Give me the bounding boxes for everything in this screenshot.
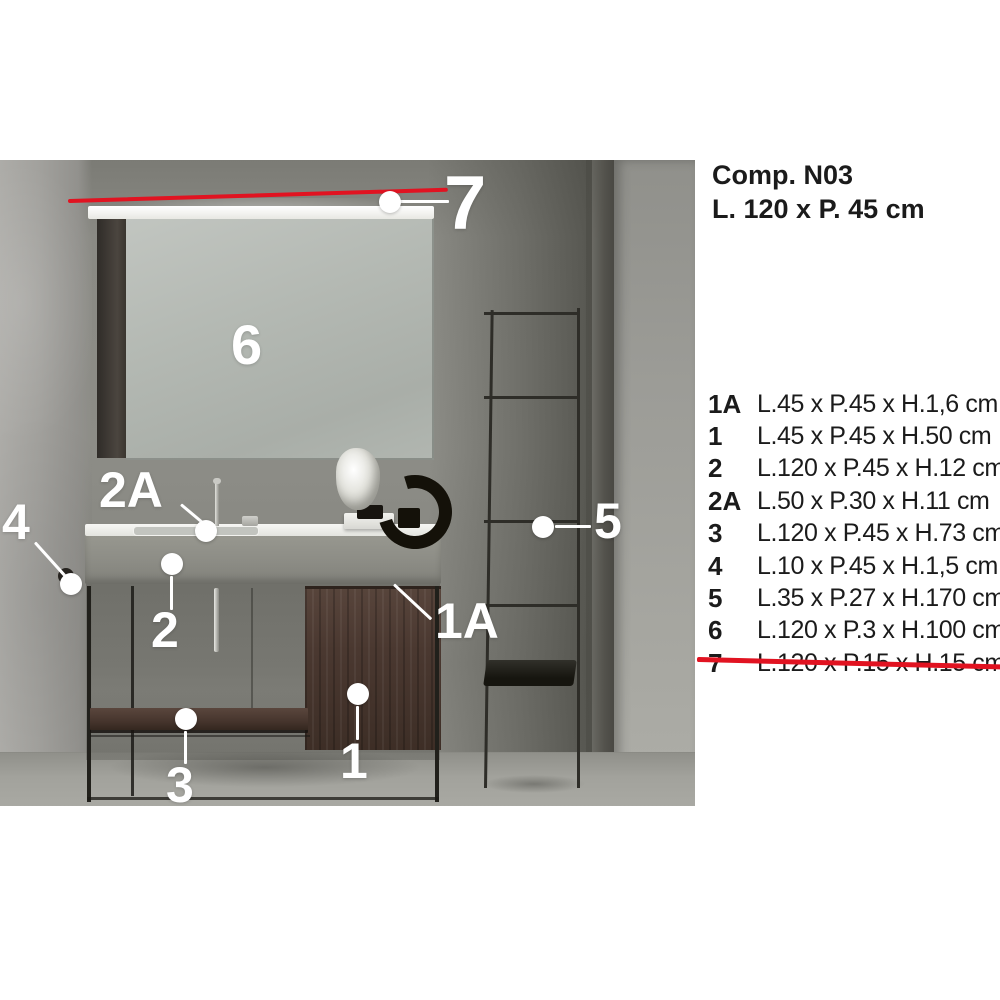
legend-part-number: 7: [708, 648, 757, 679]
marker-3-dot: [175, 708, 197, 730]
decor-black-base: [398, 508, 420, 528]
parts-legend: 1A L.45 x P.45 x H.1,6 cm 1 L.45 x P.45 …: [708, 388, 1000, 680]
legend-row: 5 L.35 x P.27 x H.170 cm: [708, 582, 1000, 614]
ladder-rung: [484, 312, 579, 315]
frame-leg-left: [87, 586, 91, 802]
composition-name: Comp. N03: [712, 158, 925, 192]
legend-part-number: 6: [708, 615, 757, 646]
marker-2-dot: [161, 553, 183, 575]
marker-1-dot: [347, 683, 369, 705]
legend-row: 3 L.120 x P.45 x H.73 cm: [708, 518, 1000, 550]
legend-part-dims: L.120 x P.45 x H.73 cm: [757, 519, 1000, 548]
shelf-frame-line: [90, 735, 310, 737]
legend-row: 1A L.45 x P.45 x H.1,6 cm: [708, 388, 1000, 420]
wall-right: [614, 160, 695, 806]
marker-6-label: 6: [231, 317, 262, 373]
marker-7-label: 7: [444, 166, 486, 242]
ladder-rail-right: [577, 308, 580, 788]
legend-row: 4 L.10 x P.45 x H.1,5 cm: [708, 550, 1000, 582]
ladder-towel-rack: [476, 308, 586, 794]
towel-rod: [214, 588, 219, 652]
catalog-page: 7 6 2A 4 2 1A 5 1 3 Comp. N03 L. 120 x P…: [0, 0, 1000, 1000]
legend-part-dims: L.120 x P.3 x H.100 cm: [757, 616, 1000, 645]
legend-part-dims: L.120 x P.45 x H.12 cm: [757, 454, 1000, 483]
legend-part-number: 1: [708, 421, 757, 452]
composition-size: L. 120 x P. 45 cm: [712, 192, 925, 226]
wall-left: [0, 160, 92, 806]
ladder-rail-left: [484, 310, 494, 788]
legend-row: 2A L.50 x P.30 x H.11 cm: [708, 485, 1000, 517]
decor-towel: [336, 448, 380, 510]
marker-2-label: 2: [151, 605, 179, 655]
marker-1A-label: 1A: [435, 596, 499, 646]
legend-part-dims: L.45 x P.45 x H.50 cm: [757, 422, 991, 451]
wood-shelf: [90, 708, 308, 730]
faucet: [215, 482, 219, 526]
legend-part-number: 3: [708, 518, 757, 549]
legend-row: 6 L.120 x P.3 x H.100 cm: [708, 615, 1000, 647]
countertop-front: [85, 536, 441, 584]
legend-part-number: 4: [708, 551, 757, 582]
ladder-shelf: [483, 660, 577, 686]
decor-jar: [242, 516, 258, 526]
legend-part-dims: L.50 x P.30 x H.11 cm: [757, 487, 989, 516]
legend-part-number: 5: [708, 583, 757, 614]
marker-5-label: 5: [594, 496, 622, 546]
marker-5-dot: [532, 516, 554, 538]
frame-leg-inner: [131, 586, 134, 796]
marker-4-label: 4: [2, 497, 30, 547]
marker-1-label: 1: [340, 736, 368, 786]
marker-7-dot: [379, 191, 401, 213]
marker-2A-label: 2A: [99, 465, 163, 515]
mirror: [126, 219, 434, 460]
marker-3-label: 3: [166, 760, 194, 810]
wall-corner: [586, 160, 616, 806]
legend-row: 1 L.45 x P.45 x H.50 cm: [708, 420, 1000, 452]
faucet-tip: [213, 478, 221, 484]
legend-part-dims: L.10 x P.45 x H.1,5 cm: [757, 552, 998, 581]
composition-header: Comp. N03 L. 120 x P. 45 cm: [712, 158, 925, 226]
marker-2A-dot: [195, 520, 217, 542]
ladder-rung: [484, 396, 579, 399]
legend-part-number: 1A: [708, 389, 757, 420]
marker-4-dot: [60, 573, 82, 595]
legend-part-dims: L.35 x P.27 x H.170 cm: [757, 584, 1000, 613]
marker-5-line: [555, 525, 591, 528]
frame-mid-line: [251, 588, 253, 708]
frame-bottom-bar: [87, 797, 439, 800]
marker-7-line: [399, 200, 449, 203]
legend-part-number: 2: [708, 453, 757, 484]
legend-part-number: 2A: [708, 486, 757, 517]
ladder-rung: [484, 520, 579, 523]
mirror-side-panel: [97, 219, 126, 458]
legend-row: 2 L.120 x P.45 x H.12 cm: [708, 453, 1000, 485]
legend-part-dims: L.45 x P.45 x H.1,6 cm: [757, 390, 998, 419]
